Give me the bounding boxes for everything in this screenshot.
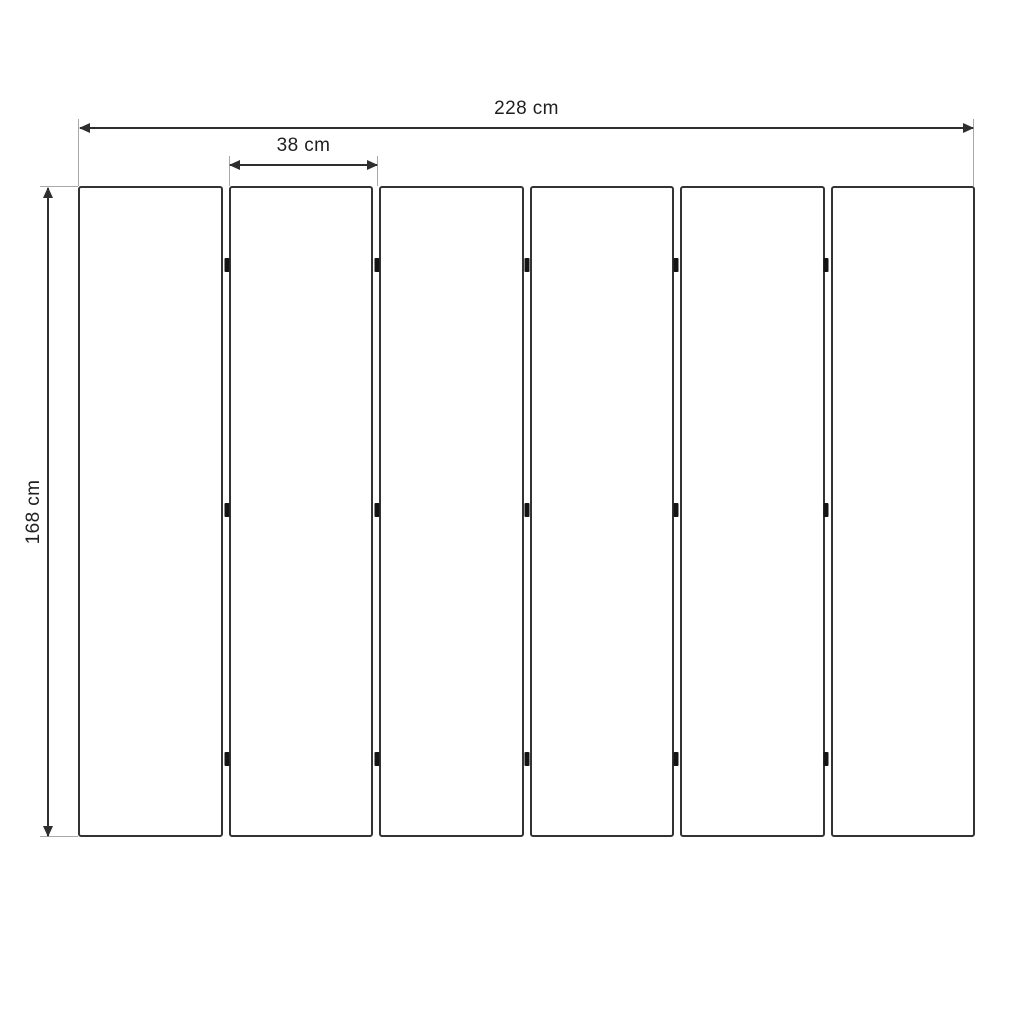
dimension-label-height: 168 cm xyxy=(23,480,45,545)
panel-group xyxy=(78,186,975,837)
panel-4 xyxy=(530,186,675,837)
panel-6 xyxy=(831,186,976,837)
panel-3 xyxy=(379,186,524,837)
hinge-mark xyxy=(374,258,379,272)
diagram-canvas: 228 cm 38 cm 168 cm xyxy=(0,0,1024,1024)
arrowhead-right-icon xyxy=(367,160,378,170)
hinge-mark xyxy=(823,503,828,517)
dimension-line-panel-width xyxy=(230,164,377,166)
hinge-mark xyxy=(673,752,678,766)
hinge-mark xyxy=(823,752,828,766)
hinge-mark xyxy=(374,752,379,766)
hinge-mark xyxy=(524,258,529,272)
dimension-line-total-width xyxy=(80,127,973,129)
hinge-mark xyxy=(374,503,379,517)
hinge-mark xyxy=(673,503,678,517)
arrowhead-right-icon xyxy=(963,123,974,133)
arrowhead-left-icon xyxy=(229,160,240,170)
arrowhead-down-icon xyxy=(43,826,53,837)
hinge-mark xyxy=(225,258,230,272)
dimension-label-panel-width: 38 cm xyxy=(230,135,377,157)
dimension-line-height xyxy=(47,188,49,836)
hinge-mark xyxy=(225,503,230,517)
hinge-mark xyxy=(673,258,678,272)
panel-2 xyxy=(229,186,374,837)
hinge-mark xyxy=(823,258,828,272)
panel-5 xyxy=(680,186,825,837)
hinge-mark xyxy=(225,752,230,766)
hinge-mark xyxy=(524,752,529,766)
arrowhead-left-icon xyxy=(79,123,90,133)
panel-1 xyxy=(78,186,223,837)
hinge-mark xyxy=(524,503,529,517)
arrowhead-up-icon xyxy=(43,187,53,198)
dimension-label-total-width: 228 cm xyxy=(80,98,973,120)
